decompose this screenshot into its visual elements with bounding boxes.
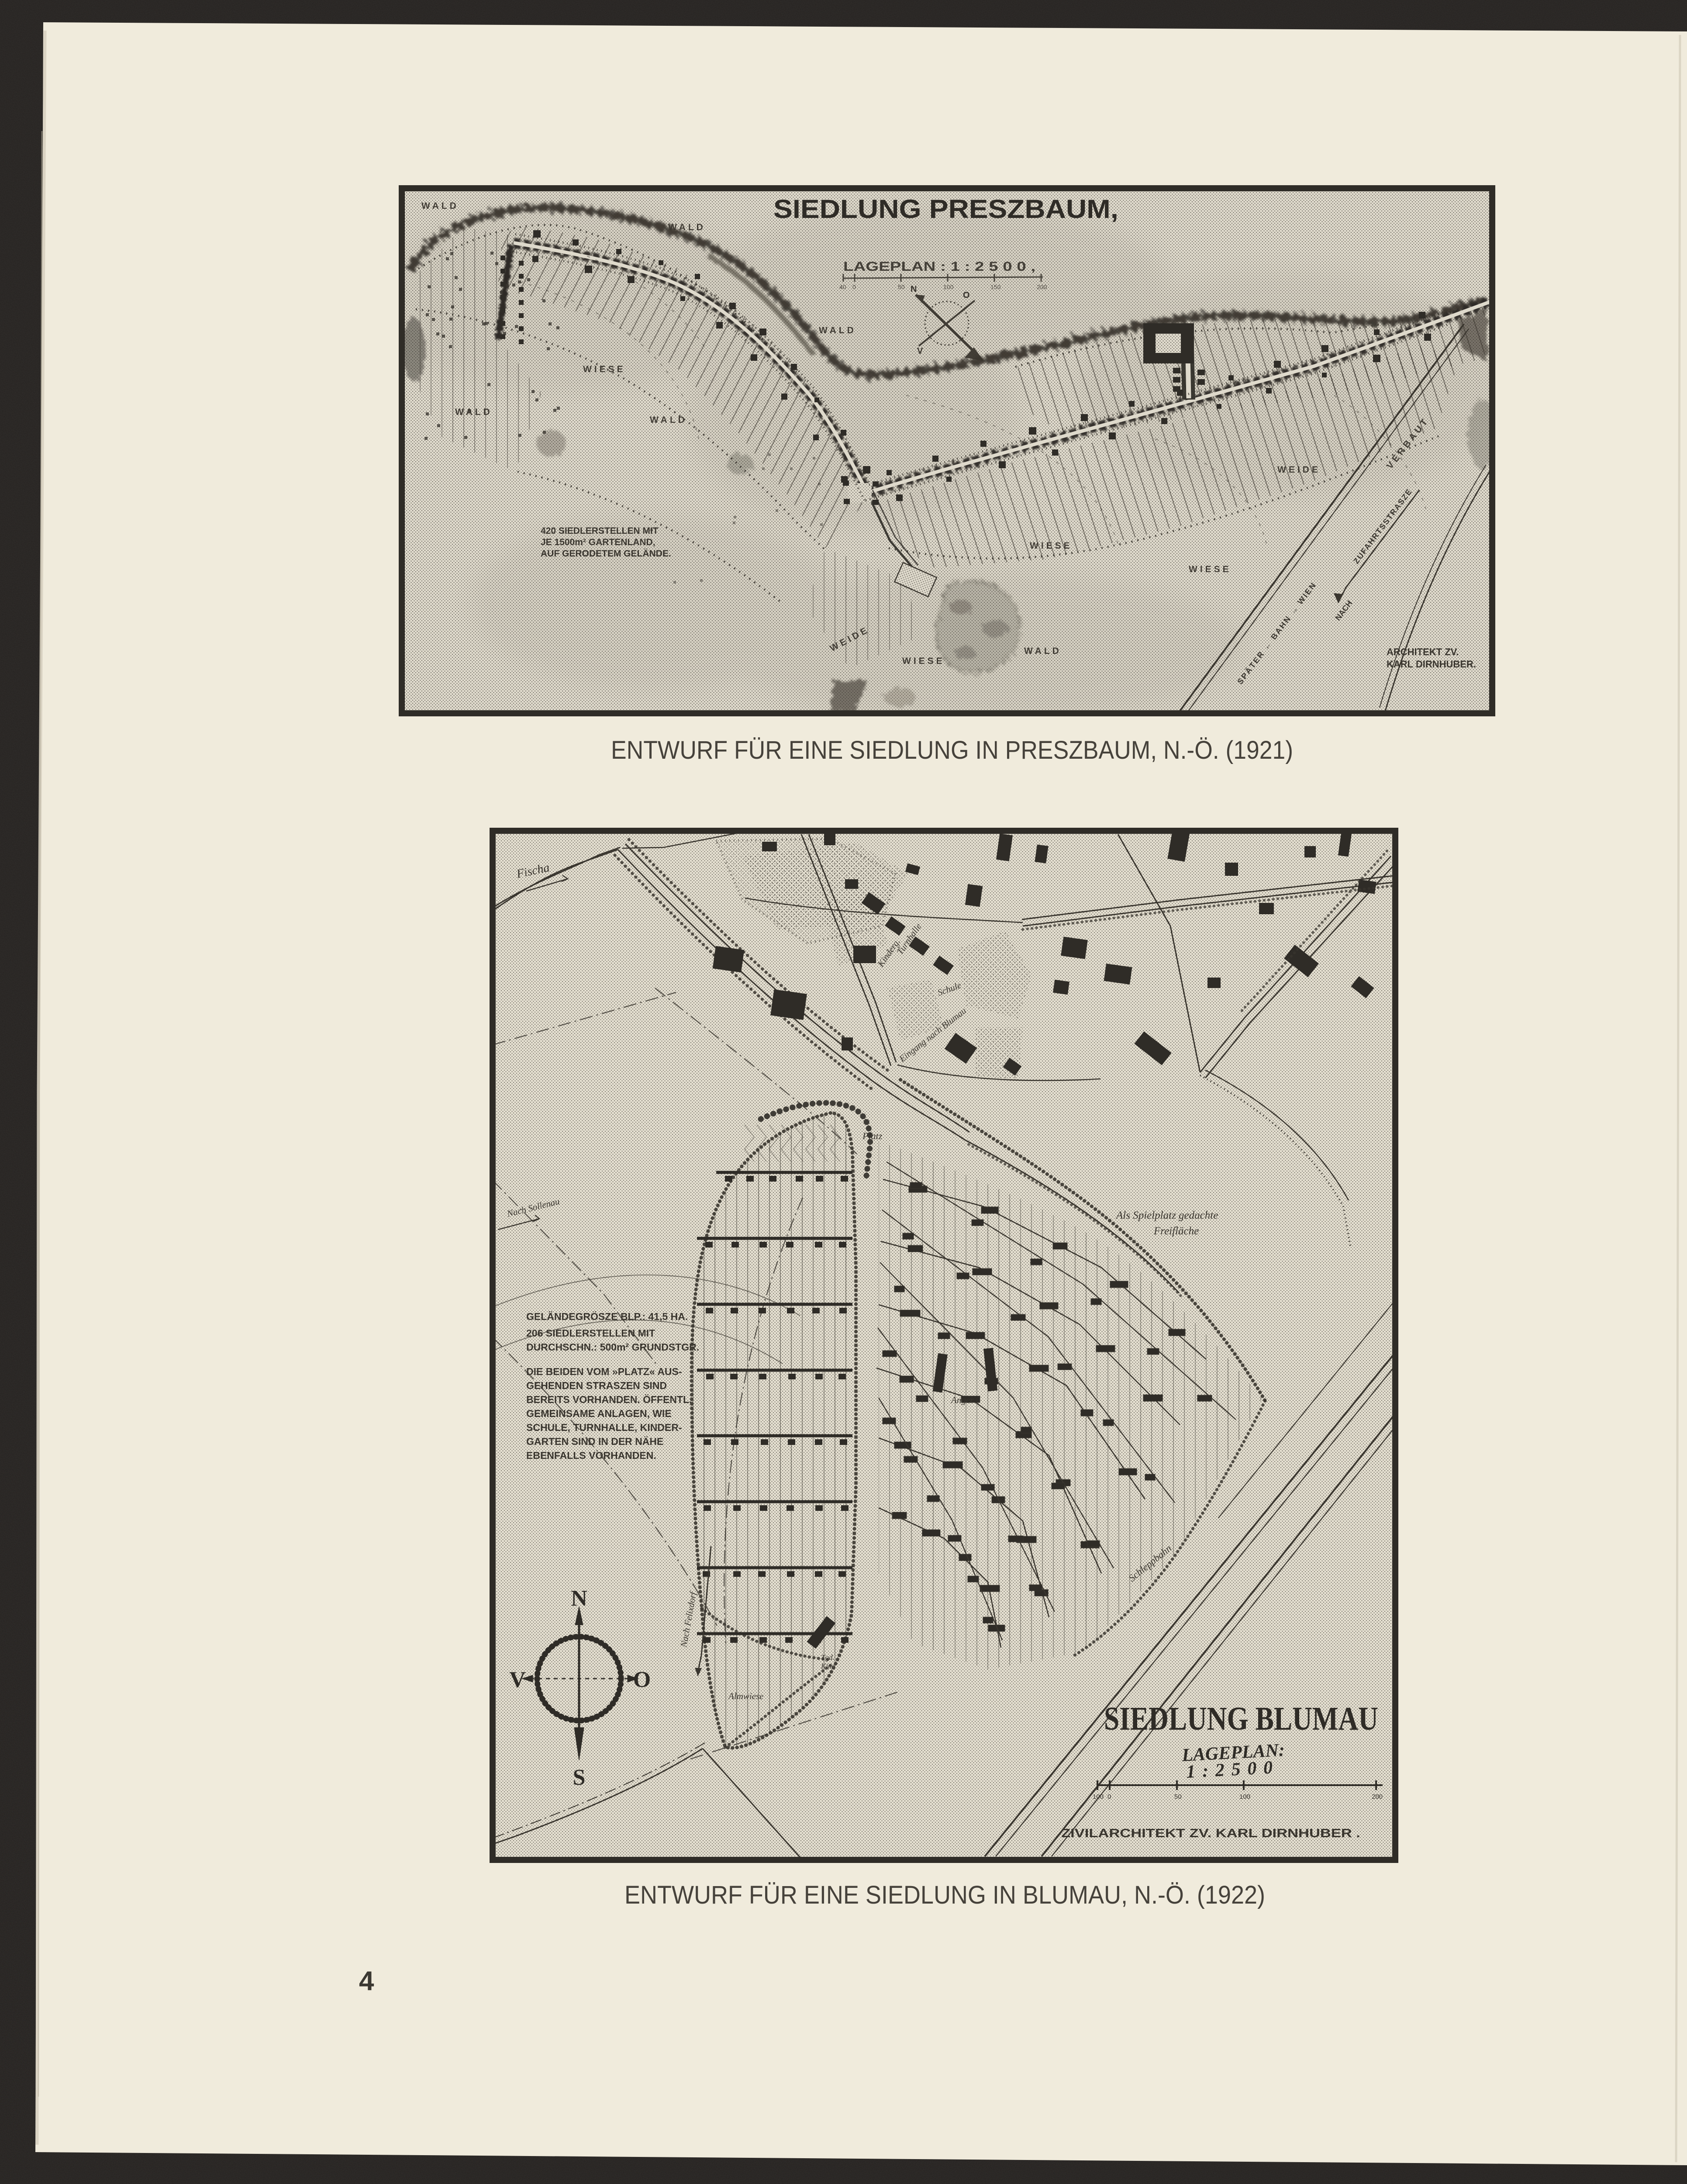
svg-text:WALD: WALD	[819, 325, 856, 335]
svg-text:V: V	[509, 1667, 526, 1692]
svg-text:Anger: Anger	[950, 1395, 974, 1405]
svg-text:WIESE: WIESE	[902, 656, 945, 666]
svg-text:200: 200	[1372, 1793, 1383, 1800]
svg-text:WIESE: WIESE	[1030, 541, 1073, 551]
svg-text:GEHENDEN STRASZEN SIND: GEHENDEN STRASZEN SIND	[526, 1380, 667, 1391]
svg-text:420 SIEDLERSTELLEN MIT: 420 SIEDLERSTELLEN MIT	[541, 526, 659, 536]
svg-text:V: V	[917, 346, 923, 356]
svg-text:O: O	[633, 1667, 651, 1692]
svg-text:WALD: WALD	[650, 415, 687, 425]
svg-text:WIESE: WIESE	[583, 364, 626, 374]
svg-text:Almwiese: Almwiese	[728, 1691, 763, 1701]
svg-text:Freifläche: Freifläche	[1153, 1225, 1199, 1237]
svg-text:GEMEINSAME ANLAGEN, WIE: GEMEINSAME ANLAGEN, WIE	[526, 1408, 672, 1419]
svg-text:206 SIEDLERSTELLEN MIT: 206 SIEDLERSTELLEN MIT	[526, 1327, 655, 1339]
svg-text:SCHULE, TURNHALLE, KINDER-: SCHULE, TURNHALLE, KINDER-	[526, 1422, 682, 1433]
svg-text:0: 0	[852, 283, 856, 290]
svg-text:WALD: WALD	[668, 222, 706, 232]
svg-text:ENTWURF FÜR EINE SIEDLUNG IN P: ENTWURF FÜR EINE SIEDLUNG IN PRESZBAUM, …	[611, 736, 1293, 764]
svg-text:EBENFALLS VORHANDEN.: EBENFALLS VORHANDEN.	[526, 1450, 656, 1461]
svg-text:Kino: Kino	[821, 1662, 835, 1670]
svg-text:WALD: WALD	[455, 407, 493, 417]
svg-text:N: N	[911, 284, 917, 294]
svg-text:WALD: WALD	[1024, 646, 1062, 656]
svg-text:100: 100	[943, 283, 954, 290]
svg-text:WEIDE: WEIDE	[1277, 465, 1321, 475]
svg-text:GELÄNDEGRÖSZE BLP.: 41,5 HA.: GELÄNDEGRÖSZE BLP.: 41,5 HA.	[526, 1311, 688, 1322]
svg-text:50: 50	[1174, 1793, 1182, 1800]
svg-text:GARTEN SIND IN DER NÄHE: GARTEN SIND IN DER NÄHE	[526, 1436, 663, 1447]
svg-text:Tgd.: Tgd.	[821, 1653, 835, 1662]
svg-text:SIEDLUNG BLUMAU: SIEDLUNG BLUMAU	[1104, 1700, 1378, 1737]
svg-text:BEREITS VORHANDEN. ÖFFENTL.: BEREITS VORHANDEN. ÖFFENTL.	[526, 1394, 692, 1405]
svg-text:JE 1500m² GARTENLAND,: JE 1500m² GARTENLAND,	[541, 537, 655, 547]
svg-text:40: 40	[839, 283, 846, 290]
svg-text:0: 0	[1107, 1793, 1111, 1800]
svg-text:100: 100	[1093, 1793, 1104, 1800]
svg-text:ENTWURF FÜR EINE SIEDLUNG IN B: ENTWURF FÜR EINE SIEDLUNG IN BLUMAU, N.-…	[624, 1881, 1265, 1909]
svg-text:ZIVILARCHITEKT ZV. KARL DIRNHU: ZIVILARCHITEKT ZV. KARL DIRNHUBER .	[1061, 1826, 1360, 1840]
svg-text:N: N	[571, 1586, 587, 1611]
svg-text:LAGEPLAN : 1 : 2 5 0 0 ,: LAGEPLAN : 1 : 2 5 0 0 ,	[843, 259, 1035, 274]
svg-text:AUF GERODETEM GELÄNDE.: AUF GERODETEM GELÄNDE.	[541, 549, 671, 559]
svg-text:DURCHSCHN.: 500m² GRUNDSTGR.: DURCHSCHN.: 500m² GRUNDSTGR.	[526, 1341, 699, 1353]
svg-text:200: 200	[1037, 283, 1047, 290]
svg-text:Als Spielplatz gedachte: Als Spielplatz gedachte	[1115, 1209, 1218, 1221]
svg-text:WIESE: WIESE	[1189, 564, 1232, 574]
svg-text:50: 50	[898, 283, 905, 290]
svg-text:4: 4	[359, 1966, 374, 1996]
svg-text:150: 150	[990, 283, 1001, 290]
svg-text:KARL DIRNHUBER.: KARL DIRNHUBER.	[1387, 659, 1476, 670]
svg-text:SIEDLUNG PRESZBAUM,: SIEDLUNG PRESZBAUM,	[773, 194, 1118, 224]
svg-text:ARCHITEKT ZV.: ARCHITEKT ZV.	[1387, 646, 1459, 657]
svg-text:S: S	[573, 1765, 586, 1790]
svg-text:O: O	[963, 290, 970, 300]
svg-text:100: 100	[1239, 1793, 1250, 1800]
svg-text:WALD: WALD	[421, 201, 459, 211]
svg-text:DIE BEIDEN VOM »PLATZ« AUS-: DIE BEIDEN VOM »PLATZ« AUS-	[526, 1366, 682, 1377]
